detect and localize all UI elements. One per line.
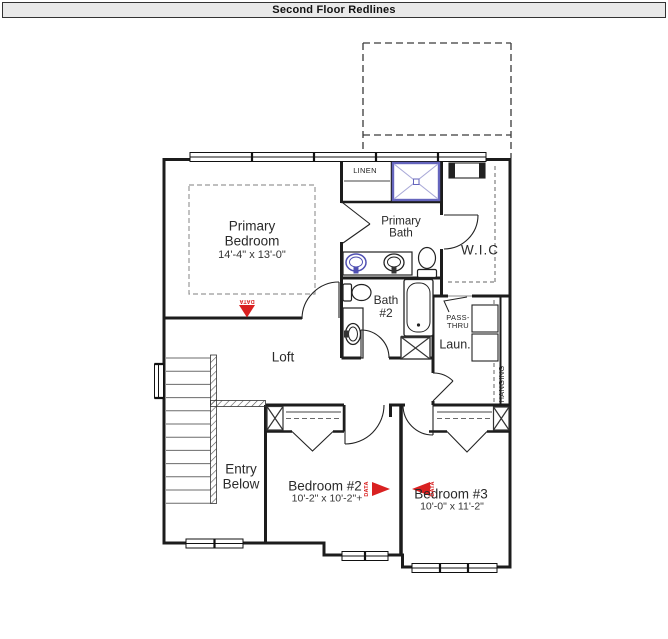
loft-railing-horizontal [211, 401, 266, 407]
staircase [166, 355, 266, 504]
wic-door [444, 215, 478, 249]
wic-cabinet [449, 163, 485, 178]
window-left [155, 364, 164, 398]
shower [393, 163, 439, 200]
bath2-door [361, 330, 389, 358]
bedroom2-door [345, 405, 384, 444]
floorplan-sheet: Second Floor Redlines [0, 0, 668, 639]
primary-bath-double-door [343, 203, 370, 243]
wic-dashed-shelving [448, 166, 495, 403]
data-marker-primary-bedroom [239, 305, 255, 318]
bedroom2-closet-doors [292, 432, 333, 452]
bath2-toilet [343, 284, 371, 301]
bedroom3-closet-xbox [494, 407, 510, 430]
primary-bedroom-door [302, 282, 339, 319]
sink-blue-redline [346, 254, 366, 274]
bathtub [404, 280, 433, 337]
bedroom3-closet-doors [447, 432, 487, 453]
laundry-door [433, 373, 453, 401]
data-marker-bedroom2 [372, 482, 390, 496]
bedroom2-closet-xbox [267, 407, 283, 431]
hall-linen-xbox [401, 337, 430, 359]
window-top-band [190, 153, 486, 162]
floorplan-drawing [0, 0, 668, 639]
window-bedroom3-bottom [412, 564, 497, 573]
bedroom3-door [403, 405, 433, 435]
tray-ceiling-dashed [189, 185, 315, 294]
primary-vanity [343, 252, 412, 275]
bath2-vanity [343, 308, 363, 358]
roof-dashed-outline [363, 43, 511, 158]
window-bedroom2-bottom [342, 552, 388, 561]
stair-railing-vertical [211, 355, 217, 504]
sink-primary [384, 254, 404, 274]
pass-thru-leader [444, 297, 467, 312]
primary-toilet [418, 248, 437, 278]
washer-dryer [472, 305, 498, 361]
data-marker-bedroom3 [412, 482, 430, 496]
stair-treads [166, 358, 211, 503]
window-entry-bottom [186, 539, 243, 548]
